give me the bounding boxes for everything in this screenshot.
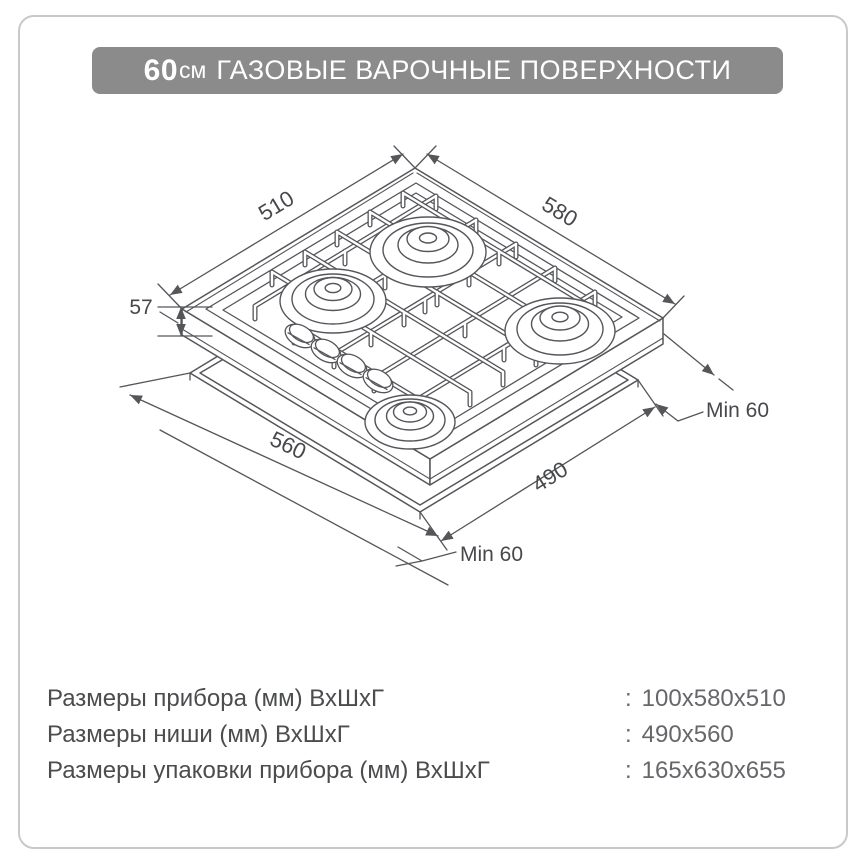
spec-value: 490x560 xyxy=(642,721,734,748)
spec-label: Размеры ниши (мм) ВхШхГ xyxy=(47,721,350,748)
burner-back xyxy=(370,217,486,287)
spec-label: Размеры прибора (мм) ВхШхГ xyxy=(47,685,384,712)
spec-separator: : xyxy=(625,753,632,789)
burner-left xyxy=(280,269,386,333)
spec-row-niche-size: Размеры ниши (мм) ВхШхГ :490x560 xyxy=(47,717,827,753)
dim-label-min60-front: Min 60 xyxy=(460,543,523,566)
spec-label: Размеры упаковки прибора (мм) ВхШхГ xyxy=(47,757,490,784)
spec-value: 165x630x655 xyxy=(642,757,786,784)
dim-label-min60-side: Min 60 xyxy=(706,399,769,422)
spec-separator: : xyxy=(625,717,632,753)
spec-sheet-page: 60см ГАЗОВЫЕ ВАРОЧНЫЕ ПОВЕРХНОСТИ xyxy=(0,0,868,868)
burner-front xyxy=(365,395,455,449)
dim-label-57: 57 xyxy=(129,296,152,319)
spec-row-device-size: Размеры прибора (мм) ВхШхГ :100x580x510 xyxy=(47,681,827,717)
specs-table: Размеры прибора (мм) ВхШхГ :100x580x510 … xyxy=(47,681,827,789)
burner-right xyxy=(505,298,615,364)
spec-separator: : xyxy=(625,681,632,717)
dim-label-510: 510 xyxy=(254,185,298,225)
spec-value: 100x580x510 xyxy=(642,685,786,712)
dim-label-560: 560 xyxy=(266,426,310,464)
spec-row-package-size: Размеры упаковки прибора (мм) ВхШхГ :165… xyxy=(47,753,827,789)
